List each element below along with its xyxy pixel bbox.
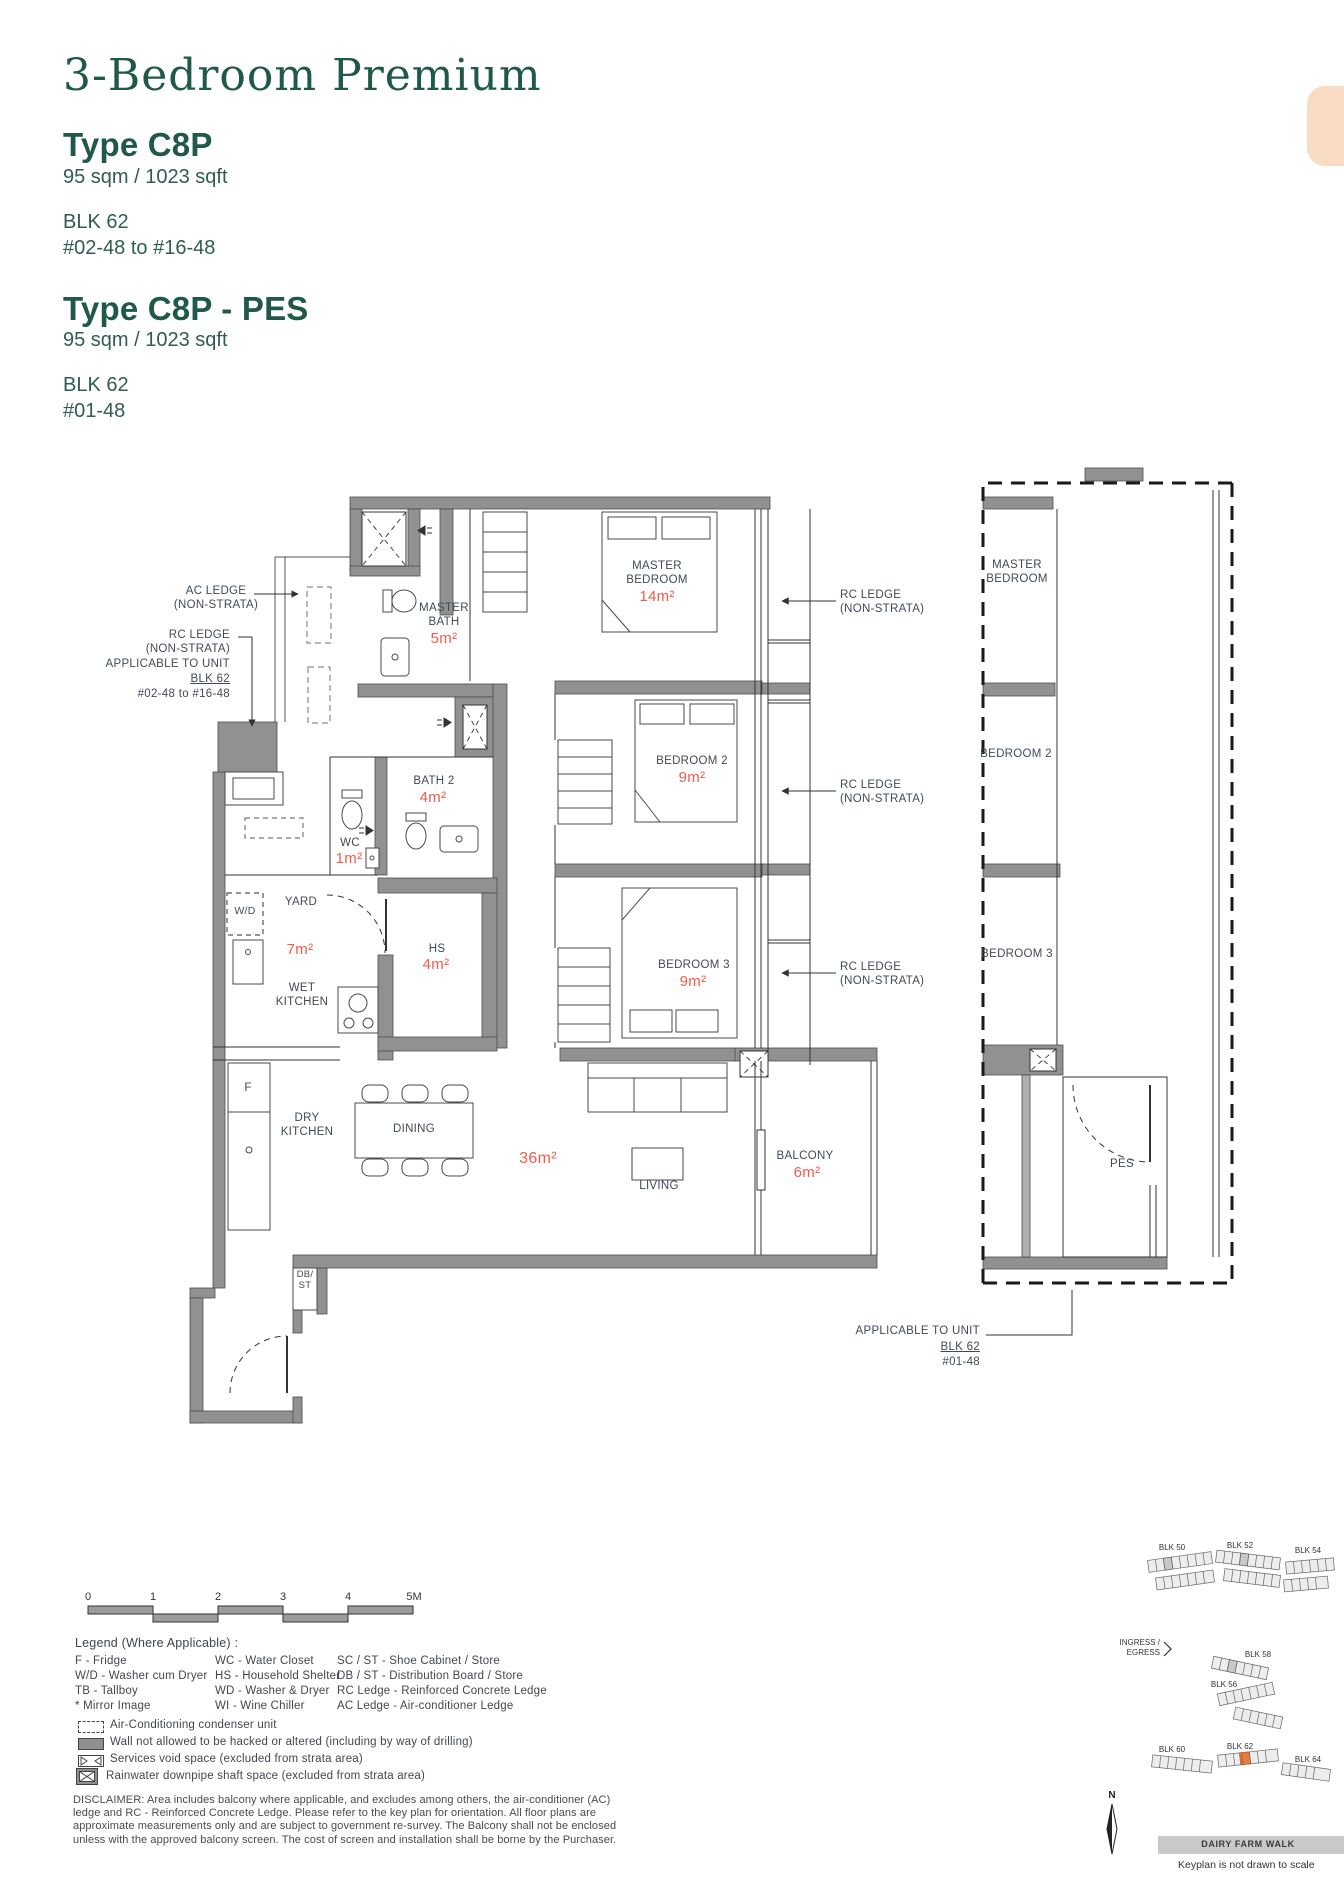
legend-item-ac-ledge: AC Ledge - Air-conditioner Ledge: [337, 1700, 513, 1712]
ingress-line2: EGRESS: [1098, 1648, 1160, 1658]
pes-plan-master-bedroom: MASTER BEDROOM: [975, 559, 1059, 586]
room-area-wc: 1m²: [336, 850, 363, 867]
scale-tick-5m: 5M: [406, 1591, 421, 1603]
ac-condenser-symbol-icon: [78, 1721, 104, 1733]
rc-ledge-right-label-2b: (NON-STRATA): [840, 793, 924, 807]
rainwater-shaft-symbol-icon: [76, 1768, 98, 1790]
legend-item-fridge: F - Fridge: [75, 1655, 127, 1667]
disclaimer-text: DISCLAIMER: Area includes balcony where …: [73, 1794, 635, 1847]
applicable-unit-units: #01-48: [810, 1356, 980, 1370]
pes-plan-pes-label: PES: [1110, 1158, 1134, 1172]
pes-plan-bedroom3: BEDROOM 3: [979, 948, 1055, 962]
legend-item-sc-st: SC / ST - Shoe Cabinet / Store: [337, 1655, 500, 1667]
north-compass-icon: [1107, 1804, 1117, 1854]
room-label-bedroom3: BEDROOM 3: [658, 959, 730, 973]
rc-ledge-right-label-3b: (NON-STRATA): [840, 975, 924, 989]
applicable-unit-label: APPLICABLE TO UNIT: [810, 1325, 980, 1339]
room-label-dining: DINING: [393, 1123, 435, 1137]
ingress-line1: INGRESS /: [1098, 1638, 1160, 1648]
scale-tick-2: 2: [215, 1591, 221, 1603]
rc-ledge-left-label: RC LEDGE: [60, 629, 230, 643]
legend-symbol-rainwater: Rainwater downpipe shaft space (excluded…: [106, 1770, 425, 1782]
db-st-label: DB/ ST: [291, 1269, 319, 1291]
scale-bar: [88, 1606, 413, 1622]
room-area-bath2: 4m²: [420, 789, 447, 806]
fridge-label: F: [244, 1082, 251, 1096]
legend-item-rc-ledge: RC Ledge - Reinforced Concrete Ledge: [337, 1685, 547, 1697]
scale-tick-0: 0: [85, 1591, 91, 1603]
keyplan-road-label: DAIRY FARM WALK: [1201, 1839, 1295, 1849]
legend-heading: Legend (Where Applicable) :: [75, 1636, 238, 1650]
room-label-balcony: BALCONY: [776, 1150, 833, 1164]
rc-ledge-left-block: BLK 62: [60, 673, 230, 687]
keyplan-blk52: BLK 52: [1227, 1541, 1253, 1550]
ingress-arrow-icon: [1164, 1642, 1171, 1656]
keyplan-blk54: BLK 54: [1295, 1546, 1321, 1555]
legend-item-tb: TB - Tallboy: [75, 1685, 138, 1697]
room-area-bedroom2: 9m²: [679, 769, 706, 786]
room-label-hs: HS: [429, 943, 446, 957]
legend-item-wi: WI - Wine Chiller: [215, 1700, 305, 1712]
room-label-bedroom2: BEDROOM 2: [656, 755, 728, 769]
ac-ledge-label: AC LEDGE: [186, 585, 247, 599]
pes-plan-bedroom2: BEDROOM 2: [978, 748, 1054, 762]
keyplan-blk50: BLK 50: [1159, 1543, 1185, 1552]
legend-item-wc: WC - Water Closet: [215, 1655, 314, 1667]
legend-item-hs: HS - Household Shelter: [215, 1670, 340, 1682]
rc-ledge-right-label-3: RC LEDGE: [840, 961, 901, 975]
legend-symbol-wall: Wall not allowed to be hacked or altered…: [110, 1736, 473, 1748]
legend-item-mirror: * Mirror Image: [75, 1700, 151, 1712]
keyplan-blk62: BLK 62: [1227, 1742, 1253, 1751]
keyplan-blk58: BLK 58: [1245, 1650, 1271, 1659]
room-area-master-bedroom: 14m²: [639, 588, 674, 605]
rc-ledge-right-label-2: RC LEDGE: [840, 779, 901, 793]
room-area-yard: 7m²: [287, 941, 314, 958]
legend-symbol-void: Services void space (excluded from strat…: [110, 1753, 363, 1765]
keyplan-blk64: BLK 64: [1295, 1755, 1321, 1764]
room-label-master-bath: MASTER BATH: [415, 602, 473, 629]
room-label-yard: YARD: [285, 896, 317, 910]
floorplan-page: 3-Bedroom Premium Type C8P 95 sqm / 1023…: [0, 0, 1344, 1880]
room-area-living-dining: 36m²: [519, 1150, 557, 1168]
room-label-wet-kitchen: WET KITCHEN: [270, 982, 334, 1009]
room-area-hs: 4m²: [423, 956, 450, 973]
room-label-dry-kitchen: DRY KITCHEN: [275, 1112, 339, 1139]
room-area-master-bath: 5m²: [431, 630, 458, 647]
legend-item-washer: WD - Washer & Dryer: [215, 1685, 330, 1697]
room-area-balcony: 6m²: [794, 1164, 821, 1181]
floorplan-drawing: [0, 0, 1344, 1880]
pes-boundary: [983, 483, 1232, 1283]
keyplan-north-label: N: [1108, 1790, 1115, 1801]
legend-symbol-ac: Air-Conditioning condenser unit: [110, 1719, 277, 1731]
legend-item-wd: W/D - Washer cum Dryer: [75, 1670, 207, 1682]
room-label-bath2: BATH 2: [413, 775, 454, 789]
rc-ledge-right-label-1b: (NON-STRATA): [840, 603, 924, 617]
keyplan-note: Keyplan is not drawn to scale: [1178, 1859, 1315, 1871]
scale-tick-4: 4: [345, 1591, 351, 1603]
rc-ledge-left-units: #02-48 to #16-48: [60, 688, 230, 702]
room-area-bedroom3: 9m²: [680, 973, 707, 990]
keyplan-blk56: BLK 56: [1211, 1680, 1237, 1689]
room-label-living: LIVING: [639, 1180, 679, 1194]
rc-ledge-right-label-1: RC LEDGE: [840, 589, 901, 603]
washer-dryer-label: W/D: [234, 905, 255, 917]
legend-item-db-st: DB / ST - Distribution Board / Store: [337, 1670, 523, 1682]
keyplan-ingress-egress: INGRESS / EGRESS: [1098, 1638, 1160, 1659]
scale-tick-3: 3: [280, 1591, 286, 1603]
rc-ledge-left-label-2: (NON-STRATA): [60, 643, 230, 657]
room-label-wc: WC: [340, 837, 360, 851]
room-label-master-bedroom: MASTER BEDROOM: [615, 560, 699, 587]
keyplan-blk60: BLK 60: [1159, 1745, 1185, 1754]
ac-ledge-label-2: (NON-STRATA): [174, 599, 258, 613]
applicable-unit-block: BLK 62: [810, 1341, 980, 1355]
no-hack-wall-symbol-icon: [78, 1738, 104, 1750]
rc-ledge-left-label-3: APPLICABLE TO UNIT: [60, 658, 230, 672]
scale-tick-1: 1: [150, 1591, 156, 1603]
